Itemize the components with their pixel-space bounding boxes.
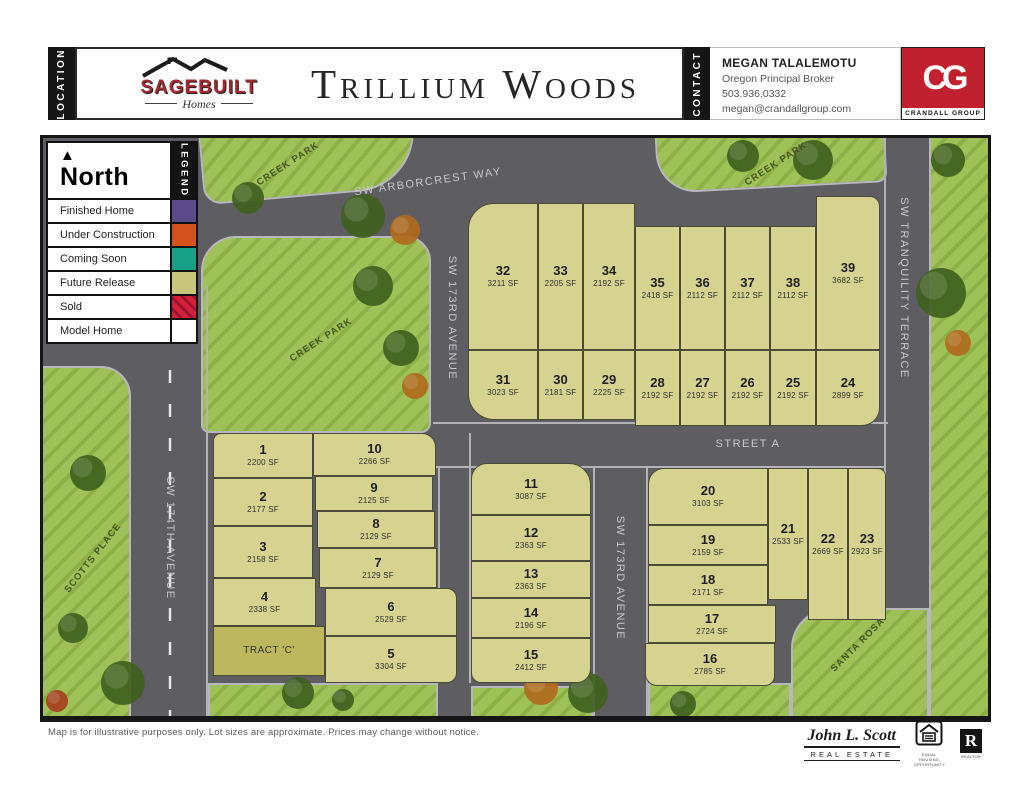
lot-number: 21 — [781, 522, 795, 537]
lot-size: 2181 SF — [545, 388, 577, 397]
lot-size: 2669 SF — [812, 547, 844, 556]
lot-36[interactable]: 362112 SF — [680, 226, 725, 350]
lot-number: 31 — [496, 373, 510, 388]
lot-size: 3682 SF — [832, 276, 864, 285]
lot-28[interactable]: 282192 SF — [635, 350, 680, 426]
lot-34[interactable]: 342192 SF — [583, 203, 635, 350]
lot-number: 12 — [524, 526, 538, 541]
lot-number: 17 — [705, 612, 719, 627]
legend-row: Model Home — [46, 318, 198, 344]
lot-size: 2225 SF — [593, 388, 625, 397]
north-label: North — [60, 163, 129, 191]
lot-2[interactable]: 22177 SF — [213, 478, 313, 526]
lot-number: 8 — [372, 517, 379, 532]
builder-name: SAGEBUILT — [99, 78, 299, 97]
lot-number: 15 — [524, 648, 538, 663]
legend-label: Sold — [46, 294, 172, 320]
lot-size: 2192 SF — [732, 391, 764, 400]
realtor-logo: R REALTOR — [958, 729, 984, 759]
lot-1[interactable]: 12200 SF — [213, 433, 313, 478]
lot-size: 2196 SF — [515, 621, 547, 630]
lot-29[interactable]: 292225 SF — [583, 350, 635, 420]
lot-number: 6 — [387, 600, 394, 615]
lot-number: 29 — [602, 373, 616, 388]
legend-row: Finished Home — [46, 198, 198, 224]
lot-10[interactable]: 102266 SF — [313, 433, 436, 476]
lot-11[interactable]: 113087 SF — [471, 463, 591, 515]
legend-swatch — [170, 246, 198, 272]
lot-size: 2112 SF — [777, 291, 808, 300]
lot-size: 2129 SF — [360, 532, 392, 541]
lot-size: 2159 SF — [692, 548, 724, 557]
lot-size: 2129 SF — [362, 571, 394, 580]
north-arrow-icon: ▲ — [60, 149, 170, 163]
lot-size: 2923 SF — [851, 547, 883, 556]
scotts-place-green — [40, 366, 131, 720]
lot-size: 2412 SF — [515, 663, 547, 672]
lot-number: 26 — [740, 376, 754, 391]
lot-number: 14 — [524, 606, 538, 621]
lot-number: 38 — [786, 276, 800, 291]
lot-number: 35 — [650, 276, 664, 291]
lot-8[interactable]: 82129 SF — [317, 511, 435, 548]
lot-18[interactable]: 182171 SF — [648, 565, 768, 605]
lot-14[interactable]: 142196 SF — [471, 598, 591, 638]
lot-23[interactable]: 232923 SF — [848, 468, 886, 620]
lot-size: 2112 SF — [732, 291, 763, 300]
lot-number: 30 — [553, 373, 567, 388]
lot-6[interactable]: 62529 SF — [325, 588, 457, 636]
contact-tab: CONTACT — [684, 47, 710, 120]
lot-number: 37 — [740, 276, 754, 291]
legend-label: Under Construction — [46, 222, 172, 248]
street-label-sw-tranquility-terrace: SW TRANQUILITY TERRACE — [898, 197, 910, 379]
lot-size: 2171 SF — [692, 588, 724, 597]
lot-16[interactable]: 162785 SF — [645, 643, 775, 686]
lot-size: 2899 SF — [832, 391, 864, 400]
legend-row: Under Construction — [46, 222, 198, 248]
street-label-sw-173rd-avenue: SW 173RD AVENUE — [614, 516, 626, 640]
header: LOCATION SAGEBUILT Homes Trillium Woods … — [48, 47, 985, 120]
builder-tagline: Homes — [99, 97, 299, 111]
lot-number: 22 — [821, 532, 835, 547]
lot-25[interactable]: 252192 SF — [770, 350, 816, 426]
legend-label: Finished Home — [46, 198, 172, 224]
lot-number: 34 — [602, 264, 616, 279]
lot-size: 2125 SF — [358, 496, 390, 505]
street-label-sw-173rd-avenue: SW 173RD AVENUE — [446, 256, 458, 380]
lot-size: 2192 SF — [687, 391, 719, 400]
contact-email[interactable]: megan@crandallgroup.com — [722, 102, 900, 117]
lot-37[interactable]: 372112 SF — [725, 226, 770, 350]
lot-number: 23 — [860, 532, 874, 547]
lot-size: 2785 SF — [694, 667, 726, 676]
lot-number: 36 — [695, 276, 709, 291]
lot-size: 2192 SF — [777, 391, 809, 400]
realtor-icon: R — [960, 729, 982, 753]
jls-subtitle: REAL ESTATE — [804, 750, 900, 761]
contact-name: MEGAN TALALEMOTU — [722, 56, 900, 70]
sagebuilt-logo: SAGEBUILT Homes — [77, 56, 299, 111]
lot-size: 2529 SF — [375, 615, 407, 624]
lot-number: 39 — [841, 261, 855, 276]
equal-housing-icon — [915, 720, 943, 746]
legend-swatch — [170, 318, 198, 344]
lot-size: 3103 SF — [692, 499, 724, 508]
street-label-street-a: STREET A — [716, 438, 781, 450]
lot-4[interactable]: 42338 SF — [213, 578, 316, 626]
lot-number: 24 — [841, 376, 855, 391]
lot-number: 27 — [695, 376, 709, 391]
legend-swatch — [170, 198, 198, 224]
site-map: 12200 SF22177 SF32158 SF42338 SF53304 SF… — [40, 135, 991, 722]
lot-size: 2205 SF — [545, 279, 577, 288]
contact-tab-label: CONTACT — [692, 51, 703, 117]
lot-size: 2177 SF — [247, 505, 279, 514]
lot-27[interactable]: 272192 SF — [680, 350, 725, 426]
lot-35[interactable]: 352418 SF — [635, 226, 680, 350]
santa-rosa-green — [791, 608, 929, 720]
cg-name: CRANDALL GROUP — [902, 108, 984, 119]
lot-number: 7 — [374, 556, 381, 571]
tract-c[interactable]: TRACT 'C' — [213, 626, 325, 676]
location-tab: LOCATION — [48, 47, 75, 120]
legend-row: Sold — [46, 294, 198, 320]
lot-number: 32 — [496, 264, 510, 279]
lot-number: 4 — [261, 590, 268, 605]
lot-size: 2338 SF — [249, 605, 281, 614]
john-l-scott-logo: John L. Scott REAL ESTATE — [804, 727, 900, 761]
lot-number: 3 — [259, 540, 266, 555]
legend-row: Coming Soon — [46, 246, 198, 272]
lot-number: 18 — [701, 573, 715, 588]
legend-tab-label: LEGEND — [178, 143, 189, 198]
lot-size: 2192 SF — [593, 279, 625, 288]
lot-number: 10 — [367, 442, 381, 457]
equal-housing-caption: EQUAL HOUSING OPPORTUNITY — [914, 752, 944, 767]
lot-size: 3087 SF — [515, 492, 547, 501]
street-curb — [593, 468, 595, 716]
lot-number: 1 — [259, 443, 266, 458]
footer-logos: John L. Scott REAL ESTATE EQUAL HOUSING … — [804, 720, 984, 767]
east-green-strip — [929, 135, 991, 720]
lot-22[interactable]: 222669 SF — [808, 468, 848, 620]
lot-26[interactable]: 262192 SF — [725, 350, 770, 426]
lot-20[interactable]: 203103 SF — [648, 468, 768, 525]
lot-19[interactable]: 192159 SF — [648, 525, 768, 565]
lot-31[interactable]: 313023 SF — [468, 350, 538, 420]
lot-size: 2418 SF — [642, 291, 674, 300]
south-green-b — [208, 683, 438, 720]
equal-housing-logo: EQUAL HOUSING OPPORTUNITY — [914, 720, 944, 767]
lot-size: 3023 SF — [487, 388, 519, 397]
realtor-caption: REALTOR — [958, 754, 984, 759]
legend-row: Future Release — [46, 270, 198, 296]
lot-size: 2363 SF — [515, 541, 547, 550]
tract-label: TRACT 'C' — [243, 645, 294, 657]
lot-17[interactable]: 172724 SF — [648, 605, 776, 643]
lot-33[interactable]: 332205 SF — [538, 203, 583, 350]
page-title: Trillium Woods — [299, 60, 652, 108]
lot-number: 13 — [524, 567, 538, 582]
lot-39[interactable]: 393682 SF — [816, 196, 880, 350]
contact-info: MEGAN TALALEMOTU Oregon Principal Broker… — [710, 47, 901, 120]
cg-monogram: CG — [902, 48, 984, 108]
lot-number: 33 — [553, 264, 567, 279]
lot-size: 2266 SF — [359, 457, 391, 466]
legend-label: Coming Soon — [46, 246, 172, 272]
location-tab-label: LOCATION — [56, 48, 67, 119]
lot-13[interactable]: 132363 SF — [471, 561, 591, 598]
lot-size: 3304 SF — [375, 662, 407, 671]
lot-size: 2112 SF — [687, 291, 718, 300]
legend-swatch — [170, 294, 198, 320]
lot-number: 25 — [786, 376, 800, 391]
south-green-c — [471, 686, 593, 720]
lot-15[interactable]: 152412 SF — [471, 638, 591, 683]
lot-size: 2200 SF — [247, 458, 279, 467]
lot-number: 19 — [701, 533, 715, 548]
title-box: SAGEBUILT Homes Trillium Woods — [75, 47, 684, 120]
lot-size: 2724 SF — [696, 627, 728, 636]
lot-number: 20 — [701, 484, 715, 499]
lot-7[interactable]: 72129 SF — [319, 548, 437, 588]
roofline-icon — [139, 56, 259, 78]
lot-number: 9 — [370, 481, 377, 496]
street-label-sw-174th-avenue: SW 174TH AVENUE — [164, 476, 176, 599]
creek-park-central — [201, 236, 431, 433]
north-indicator: ▲ North — [46, 141, 172, 200]
legend-swatch — [170, 222, 198, 248]
lot-size: 2533 SF — [772, 537, 804, 546]
lot-30[interactable]: 302181 SF — [538, 350, 583, 420]
legend-items: Finished HomeUnder ConstructionComing So… — [46, 198, 198, 344]
lot-38[interactable]: 382112 SF — [770, 226, 816, 350]
lot-number: 11 — [524, 477, 538, 492]
contact-title: Oregon Principal Broker — [722, 72, 900, 87]
legend: ▲ North LEGEND Finished HomeUnder Constr… — [46, 141, 198, 344]
legend-tab: LEGEND — [170, 141, 198, 200]
lot-number: 16 — [703, 652, 717, 667]
lot-number: 28 — [650, 376, 664, 391]
lot-number: 2 — [259, 490, 266, 505]
south-green-d — [648, 683, 791, 720]
lot-size: 3211 SF — [487, 279, 518, 288]
lot-size: 2192 SF — [642, 391, 674, 400]
crandall-group-logo: CG CRANDALL GROUP — [901, 47, 985, 120]
legend-label: Future Release — [46, 270, 172, 296]
lot-24[interactable]: 242899 SF — [816, 350, 880, 426]
street-curb — [206, 286, 208, 716]
lot-12[interactable]: 122363 SF — [471, 515, 591, 561]
lot-5[interactable]: 53304 SF — [325, 636, 457, 683]
legend-swatch — [170, 270, 198, 296]
legend-label: Model Home — [46, 318, 172, 344]
disclaimer-text: Map is for illustrative purposes only. L… — [48, 727, 479, 738]
lot-32[interactable]: 323211 SF — [468, 203, 538, 350]
lot-21[interactable]: 212533 SF — [768, 468, 808, 600]
lot-size: 2363 SF — [515, 582, 547, 591]
lot-size: 2158 SF — [247, 555, 279, 564]
lot-number: 5 — [387, 647, 394, 662]
lot-9[interactable]: 92125 SF — [315, 476, 433, 511]
jls-name: John L. Scott — [804, 727, 900, 748]
lot-3[interactable]: 32158 SF — [213, 526, 313, 578]
contact-phone: 503.936.0332 — [722, 87, 900, 102]
